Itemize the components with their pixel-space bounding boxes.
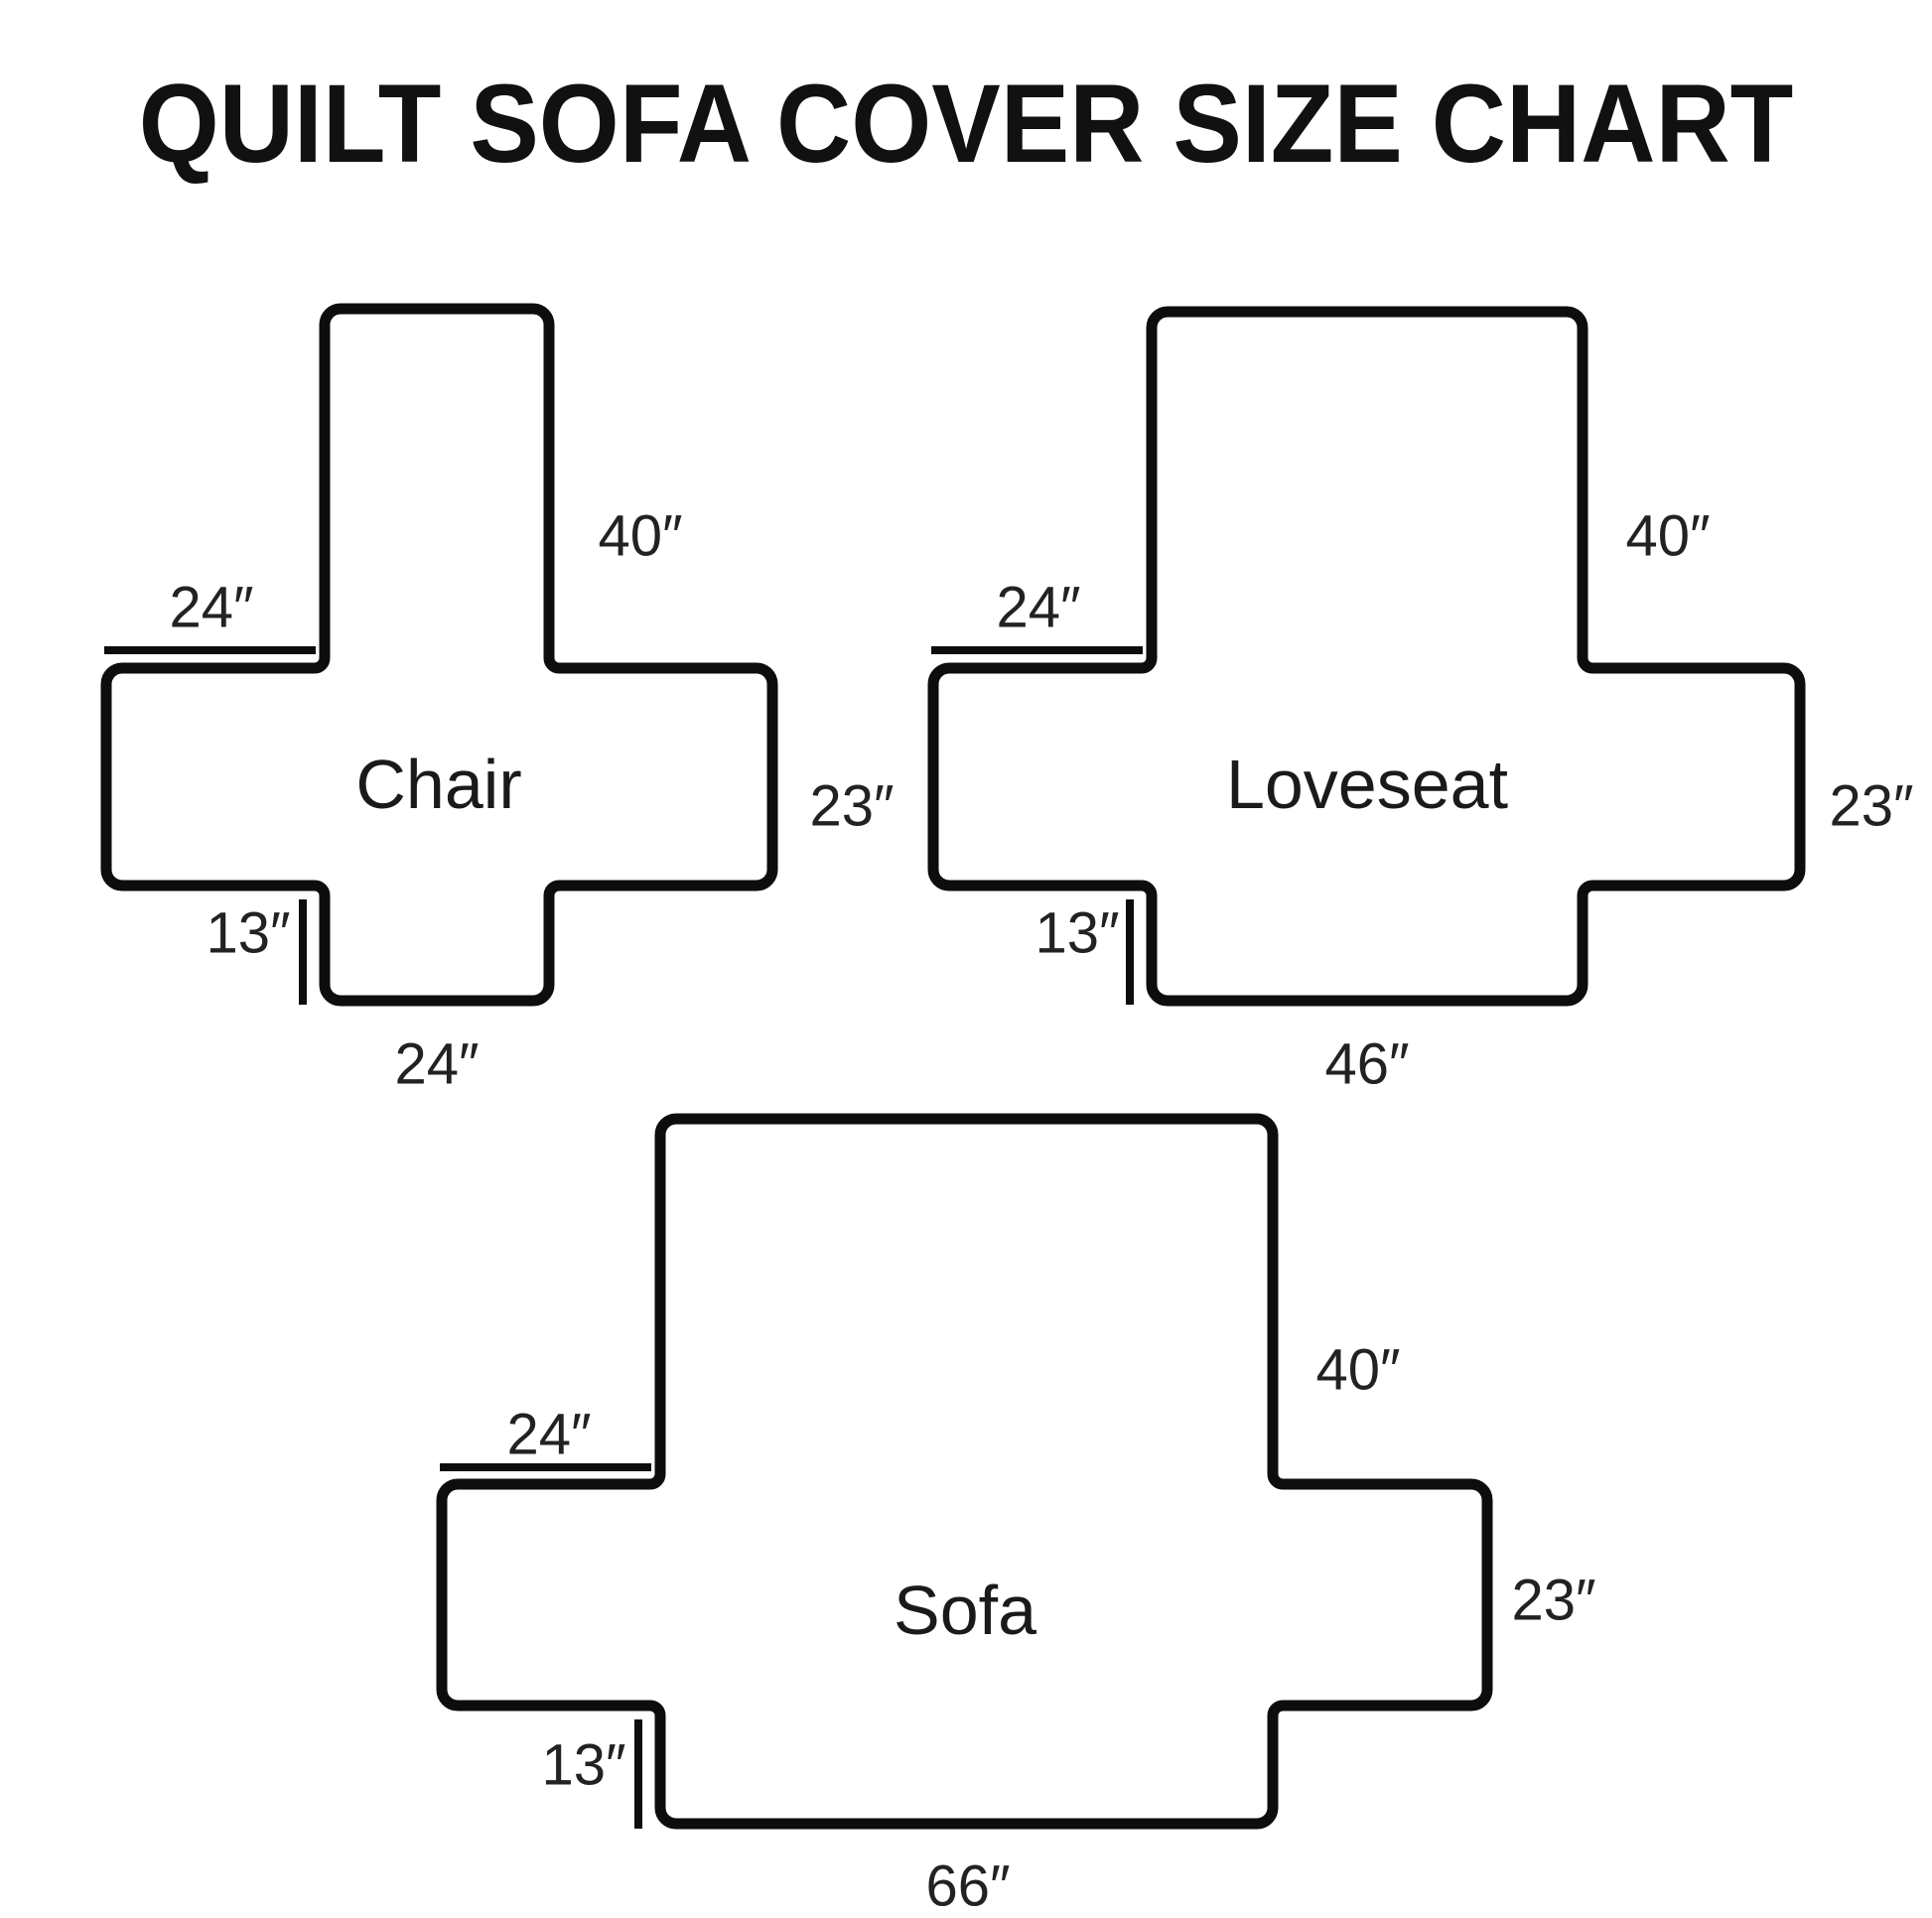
sofa-bottom-width-label: 66″ [925,1854,1010,1918]
chair-skirt-drop-label: 13″ [206,901,290,966]
loveseat-diagram: 40″ 24″ 23″ Loveseat 13″ 46″ [931,312,1914,1097]
chair-outline [106,309,772,1001]
loveseat-name-label: Loveseat [1226,746,1508,823]
chair-arm-width-label: 24″ [169,576,253,640]
loveseat-skirt-drop-label: 13″ [1035,901,1119,966]
sofa-diagram: 40″ 24″ 23″ Sofa 13″ 66″ [440,1119,1596,1918]
sofa-back-height-label: 40″ [1315,1338,1400,1403]
sofa-skirt-drop-label: 13″ [541,1733,625,1798]
loveseat-back-height-label: 40″ [1625,504,1710,569]
chair-diagram: 40″ 24″ 23″ Chair 13″ 24″ [104,309,895,1097]
size-chart-page: { "title": "QUILT SOFA COVER SIZE CHART"… [0,0,1932,1918]
chair-side-depth-label: 23″ [809,774,894,839]
chair-name-label: Chair [355,746,521,823]
sofa-side-depth-label: 23″ [1511,1569,1595,1633]
sofa-arm-width-label: 24″ [506,1403,591,1467]
loveseat-bottom-width-label: 46″ [1324,1032,1409,1097]
loveseat-arm-width-label: 24″ [996,576,1080,640]
size-diagrams: 40″ 24″ 23″ Chair 13″ 24″ 40″ 24″ 23″ Lo… [0,0,1932,1918]
loveseat-outline [933,312,1800,1001]
loveseat-side-depth-label: 23″ [1829,774,1913,839]
chair-back-height-label: 40″ [598,504,682,569]
sofa-name-label: Sofa [894,1572,1036,1649]
chair-bottom-width-label: 24″ [394,1032,479,1097]
